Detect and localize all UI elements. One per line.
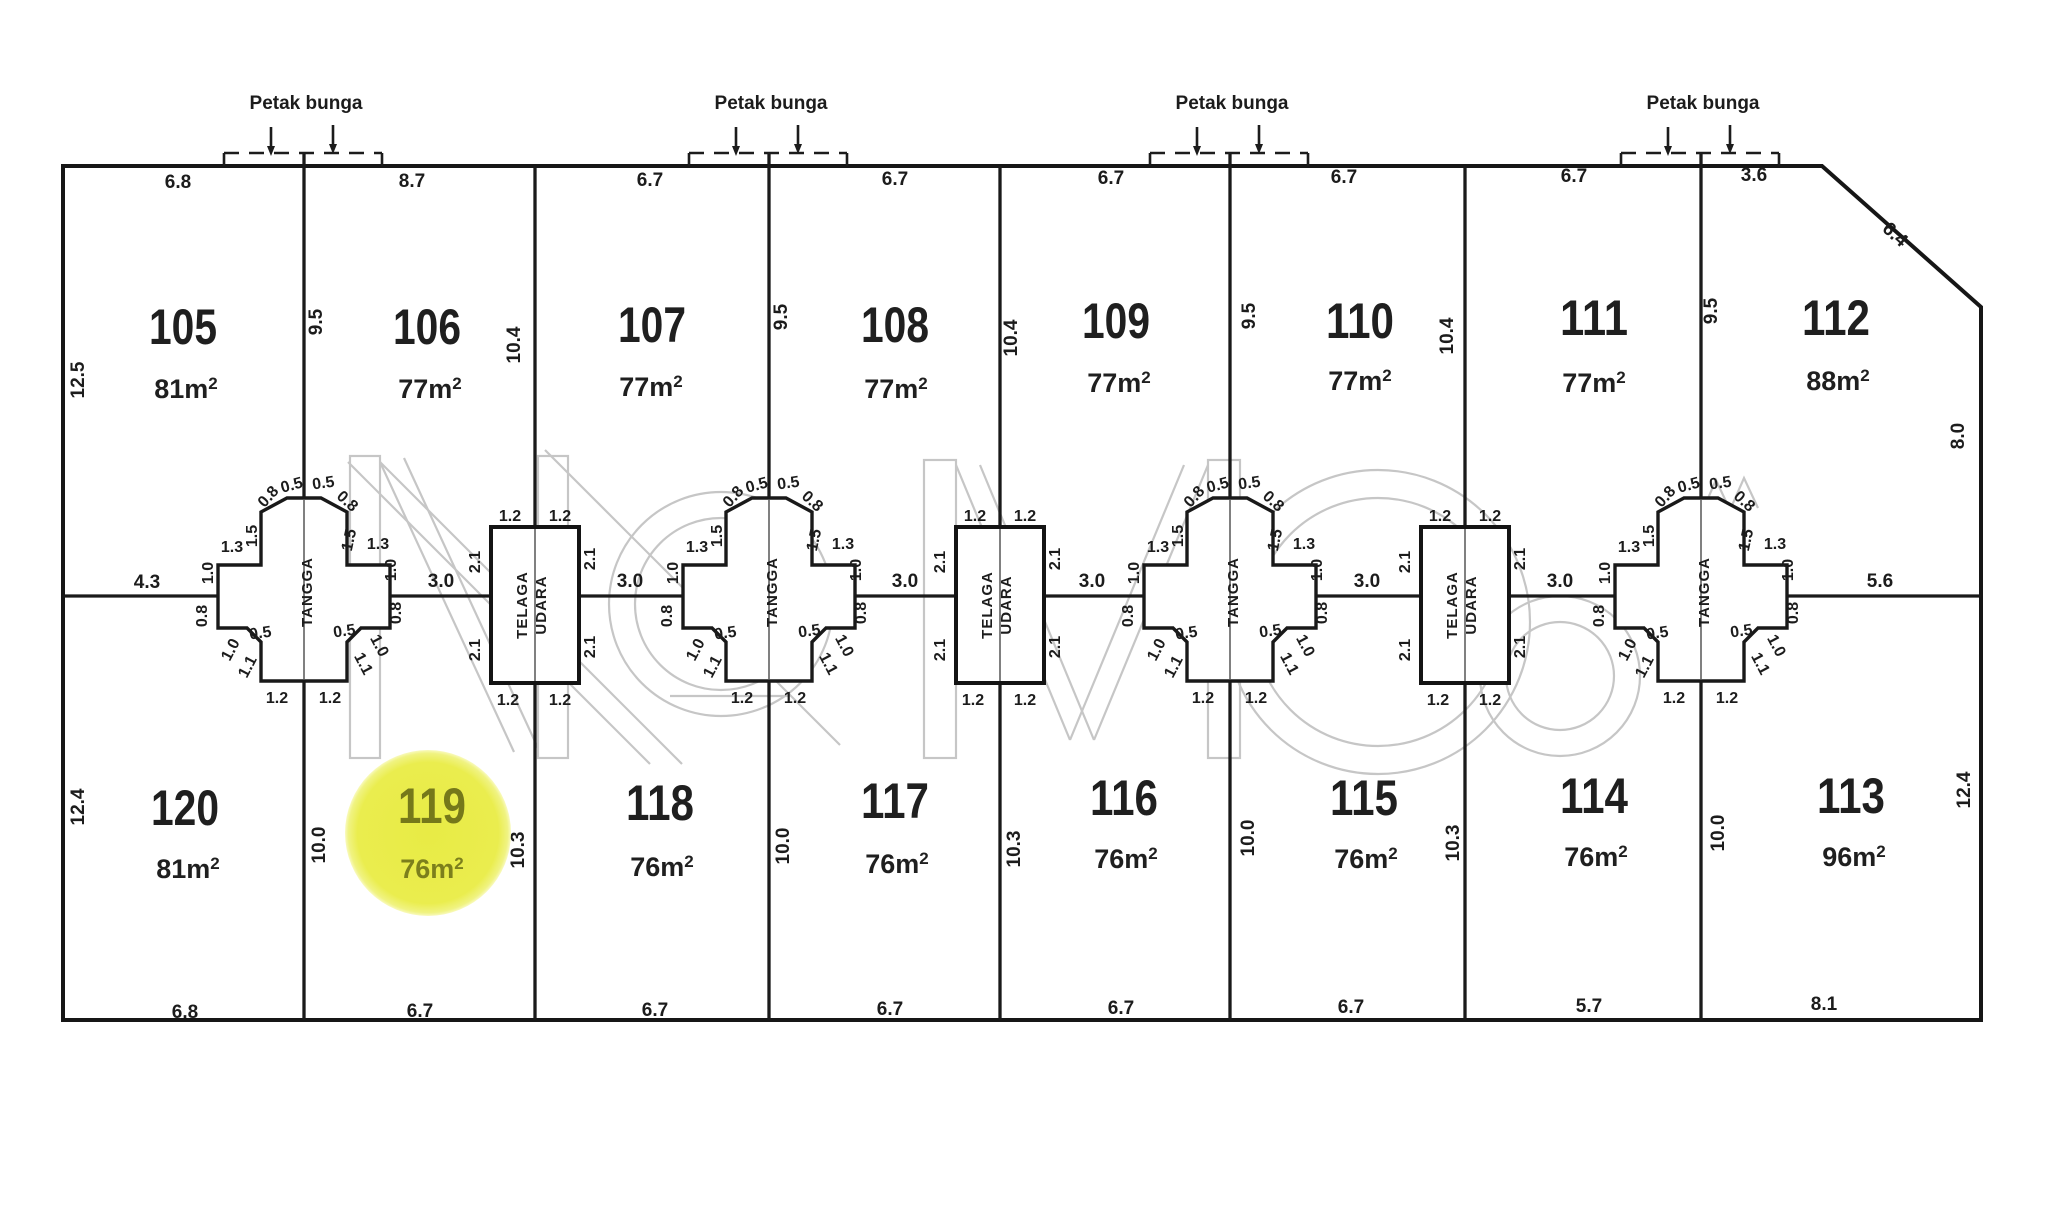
svg-text:8.1: 8.1 [1811, 994, 1838, 1015]
svg-text:106: 106 [393, 299, 461, 355]
svg-text:76m2: 76m2 [630, 852, 694, 882]
svg-text:12.4: 12.4 [68, 788, 89, 825]
svg-text:10.3: 10.3 [1443, 825, 1464, 862]
svg-text:88m2: 88m2 [1806, 366, 1870, 396]
svg-text:9.5: 9.5 [771, 303, 792, 330]
svg-text:76m2: 76m2 [1564, 842, 1628, 872]
svg-text:12.5: 12.5 [68, 361, 89, 398]
svg-text:116: 116 [1090, 770, 1158, 826]
svg-text:105: 105 [149, 299, 217, 355]
svg-text:6.7: 6.7 [407, 1001, 433, 1022]
svg-text:9.5: 9.5 [1239, 302, 1260, 329]
svg-text:120: 120 [151, 780, 219, 836]
svg-text:77m2: 77m2 [864, 374, 928, 404]
svg-text:6.8: 6.8 [165, 172, 191, 193]
svg-text:9.5: 9.5 [306, 308, 327, 335]
svg-text:10.4: 10.4 [504, 326, 525, 363]
svg-text:6.7: 6.7 [642, 1000, 668, 1021]
svg-text:76m2: 76m2 [865, 849, 929, 879]
svg-text:107: 107 [618, 297, 686, 353]
svg-text:6.7: 6.7 [1331, 167, 1357, 188]
svg-text:3.0: 3.0 [1354, 571, 1380, 592]
svg-text:114: 114 [1560, 768, 1628, 824]
svg-text:10.0: 10.0 [773, 828, 794, 865]
svg-text:77m2: 77m2 [1328, 366, 1392, 396]
svg-text:3.0: 3.0 [428, 571, 454, 592]
svg-text:117: 117 [861, 773, 929, 829]
svg-text:10.4: 10.4 [1001, 319, 1022, 356]
svg-text:6.7: 6.7 [882, 169, 908, 190]
svg-text:5.6: 5.6 [1867, 571, 1893, 592]
svg-text:115: 115 [1330, 770, 1398, 826]
svg-text:3.0: 3.0 [892, 571, 918, 592]
svg-text:76m2: 76m2 [1094, 844, 1158, 874]
svg-text:8.0: 8.0 [1948, 423, 1969, 449]
svg-text:81m2: 81m2 [154, 374, 218, 404]
svg-text:3.6: 3.6 [1741, 165, 1767, 186]
svg-text:10.0: 10.0 [309, 827, 330, 864]
svg-text:6.7: 6.7 [1098, 168, 1124, 189]
svg-text:6.7: 6.7 [877, 999, 903, 1020]
svg-text:77m2: 77m2 [1562, 368, 1626, 398]
svg-text:108: 108 [861, 297, 929, 353]
svg-text:77m2: 77m2 [619, 372, 683, 402]
svg-text:10.3: 10.3 [508, 832, 529, 869]
svg-text:6.7: 6.7 [637, 170, 663, 191]
svg-text:76m2: 76m2 [1334, 844, 1398, 874]
svg-text:6.7: 6.7 [1561, 166, 1587, 187]
svg-text:96m2: 96m2 [1822, 842, 1886, 872]
svg-text:76m2: 76m2 [400, 854, 464, 884]
svg-text:111: 111 [1560, 290, 1628, 346]
svg-text:110: 110 [1326, 293, 1394, 349]
svg-text:77m2: 77m2 [398, 374, 462, 404]
svg-text:4.3: 4.3 [134, 572, 160, 593]
svg-text:8.7: 8.7 [399, 171, 425, 192]
svg-text:10.3: 10.3 [1004, 831, 1025, 868]
svg-text:6.7: 6.7 [1338, 997, 1364, 1018]
svg-text:6.7: 6.7 [1108, 998, 1134, 1019]
svg-text:119: 119 [398, 778, 466, 834]
svg-text:3.0: 3.0 [1547, 571, 1573, 592]
svg-text:10.4: 10.4 [1437, 317, 1458, 354]
svg-text:81m2: 81m2 [156, 854, 220, 884]
svg-text:5.7: 5.7 [1576, 996, 1602, 1017]
svg-text:12.4: 12.4 [1954, 771, 1975, 808]
svg-text:10.0: 10.0 [1238, 820, 1259, 857]
svg-text:9.5: 9.5 [1701, 297, 1722, 324]
svg-text:113: 113 [1817, 768, 1885, 824]
svg-text:3.0: 3.0 [617, 571, 643, 592]
svg-text:10.0: 10.0 [1708, 815, 1729, 852]
svg-text:3.0: 3.0 [1079, 571, 1105, 592]
svg-text:77m2: 77m2 [1087, 368, 1151, 398]
svg-text:6.8: 6.8 [172, 1002, 198, 1023]
svg-text:118: 118 [626, 775, 694, 831]
svg-text:112: 112 [1802, 290, 1870, 346]
svg-text:109: 109 [1082, 293, 1150, 349]
